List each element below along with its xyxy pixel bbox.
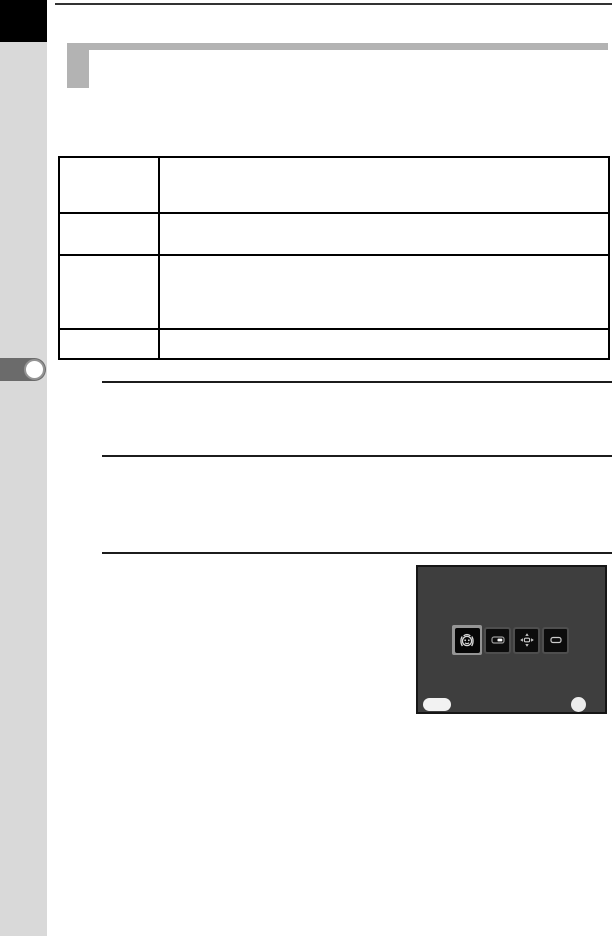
screen-menu-pill xyxy=(423,698,451,711)
table-row-label xyxy=(60,158,160,214)
chapter-marker-dot xyxy=(24,359,45,380)
face-recognition-key-face xyxy=(455,628,480,653)
note-rule-top xyxy=(102,381,612,383)
table-row-label xyxy=(60,256,160,330)
four-way-controller-key xyxy=(513,627,540,654)
sidebar xyxy=(0,42,47,936)
face-recognition-icon xyxy=(457,630,477,650)
table-row-content xyxy=(160,158,608,214)
zoom-rocker-key xyxy=(484,627,511,654)
table-row-content xyxy=(160,330,608,358)
chapter-tab xyxy=(0,0,47,42)
face-recognition-key xyxy=(452,625,482,655)
screen-ok-dot xyxy=(571,697,586,712)
ok-button-icon xyxy=(548,632,564,648)
table-row-content xyxy=(160,214,608,256)
table-row-label xyxy=(60,214,160,256)
note-rule-middle xyxy=(102,455,612,457)
table-row-content xyxy=(160,256,608,330)
page-top-rule xyxy=(55,3,612,5)
four-way-controller-icon xyxy=(518,631,536,649)
zoom-rocker-icon xyxy=(490,632,506,648)
settings-table xyxy=(58,156,610,360)
table-row-label xyxy=(60,330,160,358)
key-row xyxy=(452,625,569,655)
section-header-bar xyxy=(67,43,608,50)
note-rule-bottom xyxy=(102,552,612,554)
sidebar-chapter-marker xyxy=(0,358,46,381)
section-header-tab xyxy=(67,43,89,88)
ok-button-key xyxy=(542,627,569,654)
manual-page xyxy=(0,0,612,936)
camera-lcd-screenshot xyxy=(416,565,607,714)
